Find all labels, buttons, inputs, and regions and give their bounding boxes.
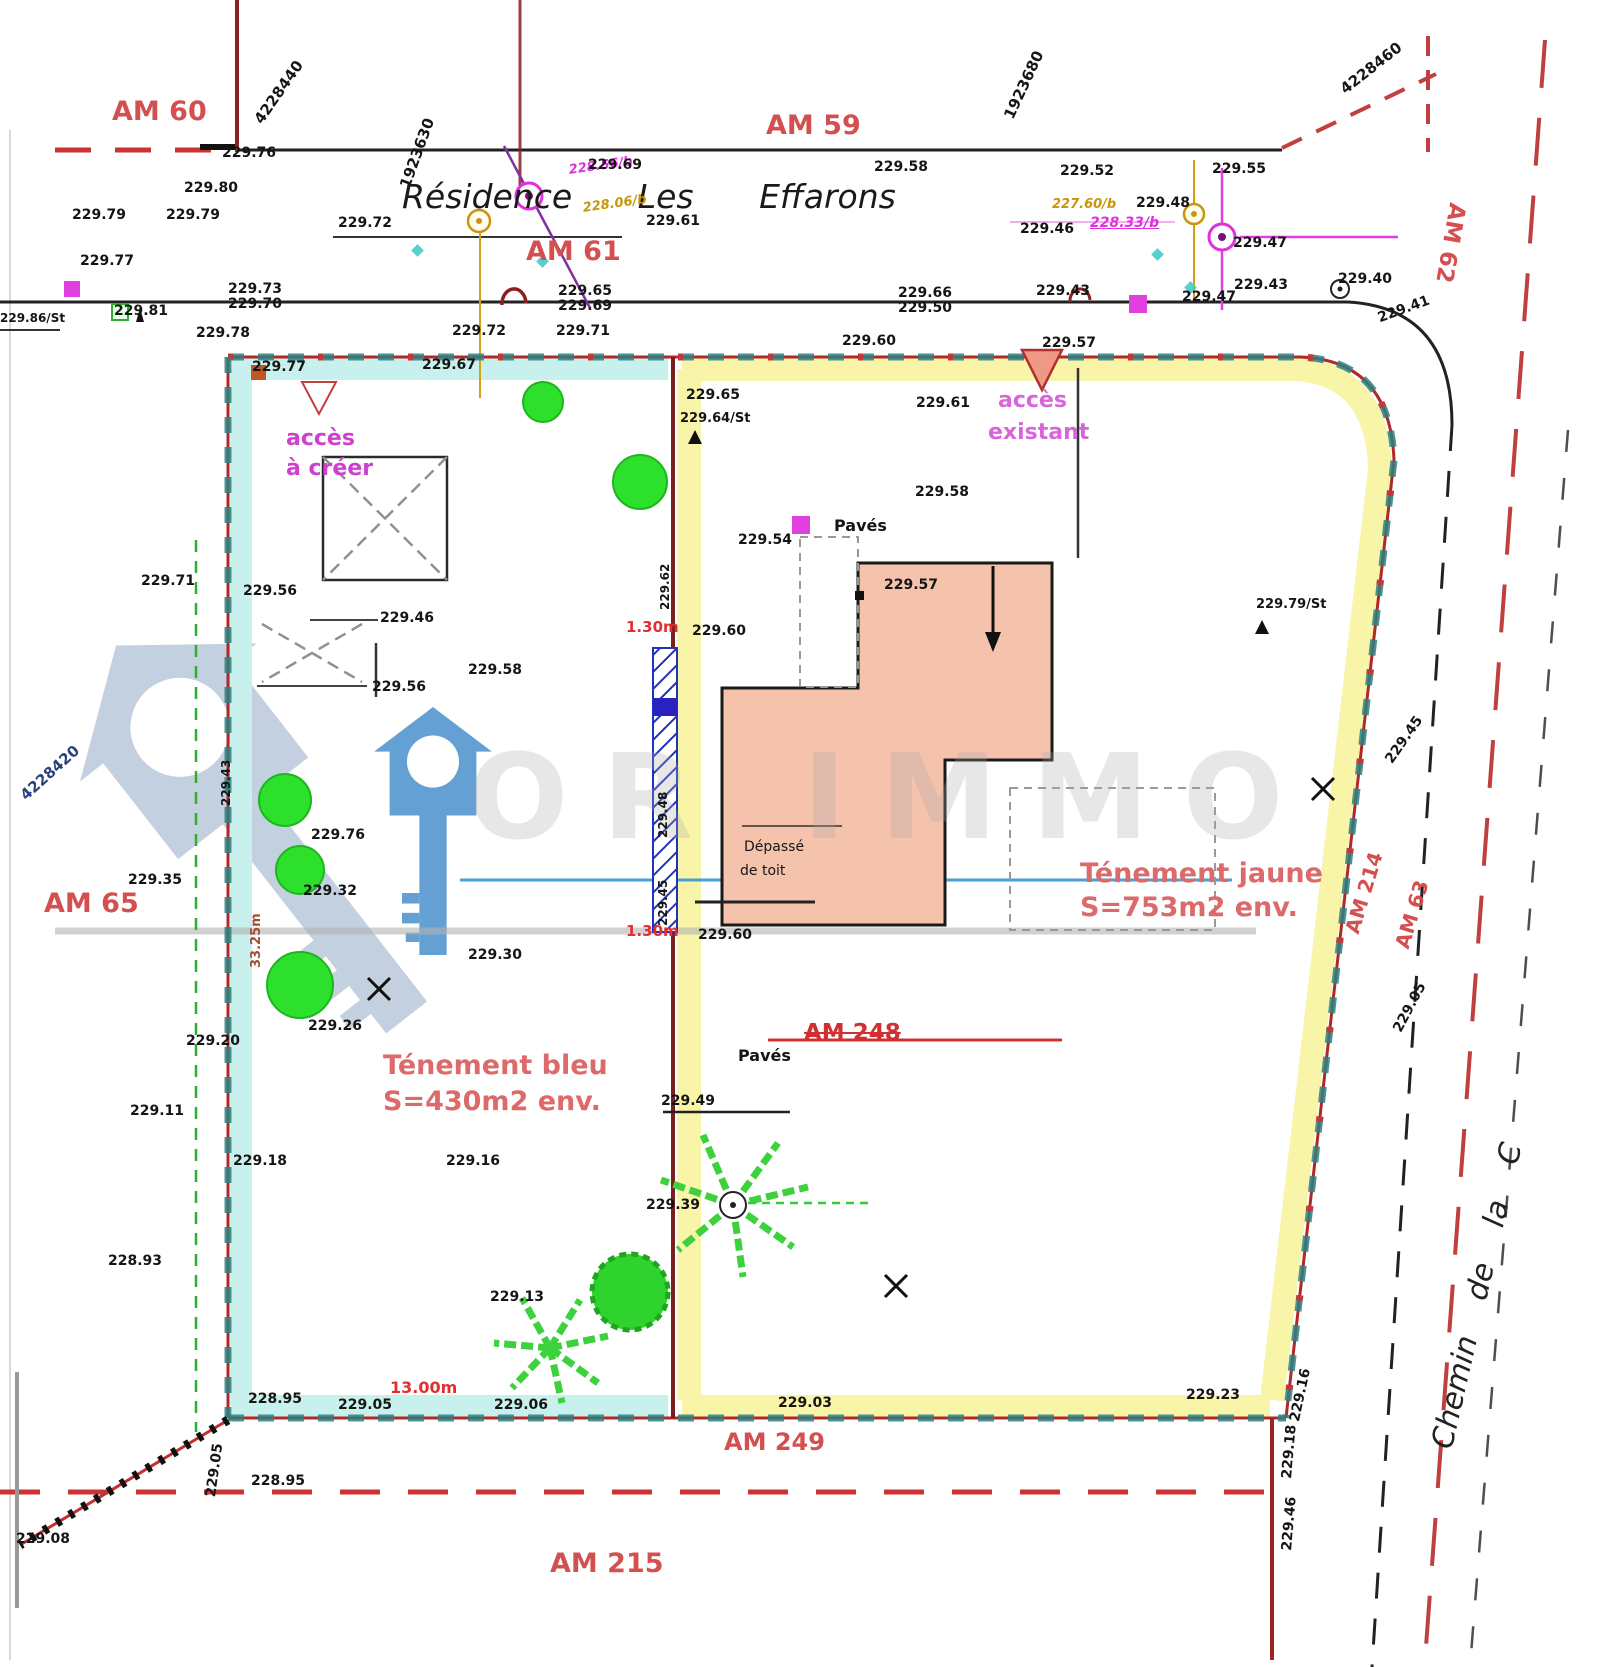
elevation-label: 228.95 (248, 1392, 302, 1406)
blue-parcel-title: Ténement bleu (383, 1052, 608, 1079)
elevation-label: 229.54 (738, 533, 792, 547)
elevation-label: 229.58 (874, 160, 928, 174)
elevation-label: 229.67 (422, 358, 476, 372)
elevation-label: 229.86/St (0, 312, 65, 324)
grid-coordinate: 4228460 (1338, 40, 1405, 97)
elevation-label: 229.81 (114, 304, 168, 318)
elevation-label: 229.46 (1280, 1496, 1299, 1551)
elevation-label: 229.76 (222, 146, 276, 160)
elevation-label: 229.72 (338, 216, 392, 230)
elevation-label: 229.60 (842, 334, 896, 348)
elevation-label: 229.11 (130, 1104, 184, 1118)
elevation-label: 229.26 (308, 1019, 362, 1033)
elevation-label: 229.43 (220, 760, 232, 806)
elevation-label: 229.78 (196, 326, 250, 340)
utility-label: 228.33/b (1090, 216, 1159, 230)
elevation-label: 229.66 (898, 286, 952, 300)
elevation-label: 229.60 (692, 624, 746, 638)
elevation-label: 229.49 (661, 1094, 715, 1108)
elevation-label: 229.46 (1020, 222, 1074, 236)
elevation-label: 229.46 (380, 611, 434, 625)
access-existing-label: accès (998, 390, 1067, 412)
elevation-label: 229.30 (468, 948, 522, 962)
elevation-label: 229.73 (228, 282, 282, 296)
yellow-parcel-area: S=753m2 env. (1080, 894, 1298, 921)
access-to-create-label: à créer (286, 458, 373, 480)
elevation-label: 229.05 (1391, 980, 1429, 1034)
elevation-label: 229.48 (1136, 196, 1190, 210)
elevation-label: 229.71 (141, 574, 195, 588)
parcel-label-am63: AM 63 (1392, 878, 1432, 951)
elevation-label: 229.16 (1288, 1367, 1313, 1423)
elevation-label: 229.80 (184, 181, 238, 195)
roof-overhang-label: Dépassé (744, 840, 804, 854)
paving-label: Pavés (834, 518, 887, 534)
plan-canvas: OR IMMO 42284401923630192368042284604228… (0, 0, 1600, 1667)
elevation-label: 229.57 (1042, 336, 1096, 350)
elevation-label: 229.08 (16, 1532, 70, 1546)
elevation-label: 229.64/St (680, 412, 751, 425)
elevation-label: 229.60 (698, 928, 752, 942)
elevation-label: 229.23 (1186, 1388, 1240, 1402)
elevation-label: 229.56 (243, 584, 297, 598)
elevation-label: 229.79/St (1256, 598, 1327, 611)
elevation-label: 229.47 (1233, 236, 1287, 250)
elevation-label: 228.93 (108, 1254, 162, 1268)
elevation-label: 229.45 (657, 880, 669, 926)
elevation-label: 229.40 (1338, 272, 1392, 286)
parcel-label-am59: AM 59 (766, 112, 861, 139)
elevation-label: 229.39 (646, 1198, 700, 1212)
elevation-label: 229.32 (303, 884, 357, 898)
parcel-label-am214: AM 214 (1342, 850, 1386, 936)
elevation-label: 229.45 (1383, 714, 1425, 766)
elevation-label: 229.20 (186, 1034, 240, 1048)
elevation-label: 229.52 (1060, 164, 1114, 178)
elevation-label: 229.16 (446, 1154, 500, 1168)
elevation-label: 229.69 (588, 158, 642, 172)
dimension-label: 13.00m (390, 1380, 457, 1396)
roof-overhang-label: de toit (740, 864, 785, 878)
label-layer: 42284401923630192368042284604228420AM 60… (0, 0, 1600, 1667)
elevation-label: 229.71 (556, 324, 610, 338)
parcel-label-am62: AM 62 (1431, 201, 1468, 284)
parcel-label-am65: AM 65 (44, 890, 139, 917)
parcel-label-am60: AM 60 (112, 98, 207, 125)
elevation-label: 229.50 (898, 301, 952, 315)
dimension-label: 33.25m (250, 913, 263, 968)
elevation-label: 229.77 (80, 254, 134, 268)
elevation-label: 229.65 (558, 284, 612, 298)
elevation-label: 229.35 (128, 873, 182, 887)
elevation-label: 229.62 (659, 564, 671, 610)
elevation-label: 229.03 (778, 1396, 832, 1410)
parcel-label-am61: AM 61 (526, 238, 621, 265)
elevation-label: 229.65 (686, 388, 740, 402)
elevation-label: 229.18 (233, 1154, 287, 1168)
elevation-label: 229.05 (204, 1442, 225, 1497)
grid-coordinate: 4228440 (252, 58, 306, 126)
elevation-label: 229.43 (1234, 278, 1288, 292)
elevation-label: 229.79 (72, 208, 126, 222)
elevation-label: 229.05 (338, 1398, 392, 1412)
road-name: Chemin de la C (1428, 1140, 1528, 1451)
elevation-label: 229.56 (372, 680, 426, 694)
elevation-label: 229.18 (1280, 1424, 1299, 1479)
blue-parcel-area: S=430m2 env. (383, 1088, 601, 1115)
elevation-label: 229.43 (1036, 284, 1090, 298)
elevation-label: 229.48 (657, 792, 669, 838)
dimension-label: 1.30m (626, 620, 679, 635)
elevation-label: 229.70 (228, 297, 282, 311)
elevation-label: 229.72 (452, 324, 506, 338)
access-to-create-label: accès (286, 428, 355, 450)
grid-coordinate: 4228420 (18, 743, 82, 803)
elevation-label: 229.13 (490, 1290, 544, 1304)
elevation-label: 229.06 (494, 1398, 548, 1412)
elevation-label: 229.58 (915, 485, 969, 499)
elevation-label: 229.79 (166, 208, 220, 222)
elevation-label: 229.77 (252, 360, 306, 374)
elevation-label: 229.69 (558, 299, 612, 313)
parcel-label-am215: AM 215 (550, 1550, 664, 1577)
elevation-label: 228.95 (251, 1474, 305, 1488)
dimension-label: 1.30m (626, 924, 679, 939)
elevation-label: 229.47 (1182, 290, 1236, 304)
grid-coordinate: 1923680 (1002, 49, 1046, 122)
access-existing-label: existant (988, 422, 1089, 444)
yellow-parcel-title: Ténement jaune (1080, 860, 1323, 887)
paving-label: Pavés (738, 1048, 791, 1064)
elevation-label: 229.41 (1376, 294, 1432, 326)
elevation-label: 229.55 (1212, 162, 1266, 176)
elevation-label: 229.61 (646, 214, 700, 228)
elevation-label: 229.76 (311, 828, 365, 842)
utility-label: 227.60/b (1052, 198, 1116, 211)
street-name: Résidence Les Effarons (402, 180, 896, 213)
elevation-label: 229.61 (916, 396, 970, 410)
elevation-label: 229.57 (884, 578, 938, 592)
parcel-label-am248-struck: AM 248 (804, 1022, 901, 1045)
elevation-label: 229.58 (468, 663, 522, 677)
parcel-label-am249: AM 249 (724, 1430, 825, 1454)
